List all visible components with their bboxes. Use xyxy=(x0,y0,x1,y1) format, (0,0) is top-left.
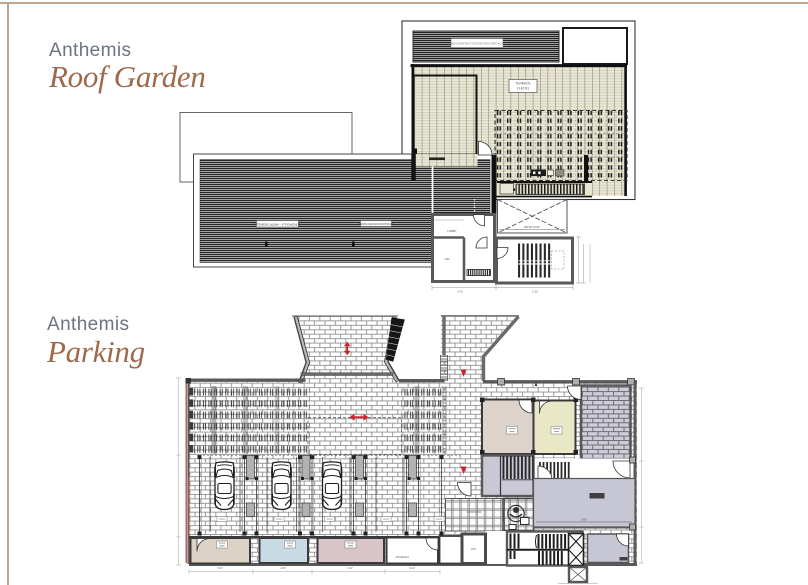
svg-text:ΔΩΜΑ ΜΗΧΑΝΟΛΟΓΙΚΩΝ: ΔΩΜΑ ΜΗΧΑΝΟΛΟΓΙΚΩΝ xyxy=(358,222,394,226)
svg-text:4.10: 4.10 xyxy=(409,566,415,570)
svg-text:ΦΩΤΑΓΩΓΟΣ: ΦΩΤΑΓΩΓΟΣ xyxy=(524,225,540,229)
svg-text:FLAT B1: FLAT B1 xyxy=(517,87,530,91)
svg-text:ΦΩΤΑΓΩΓΟΣ: ΦΩΤΑΓΩΓΟΣ xyxy=(467,511,482,514)
svg-text:5.60: 5.60 xyxy=(532,290,538,294)
svg-text:3.97: 3.97 xyxy=(217,566,223,570)
svg-text:TERRACE: TERRACE xyxy=(515,82,530,86)
svg-text:LOBBY: LOBBY xyxy=(447,229,456,233)
svg-text:4.05: 4.05 xyxy=(280,566,286,570)
svg-text:9.80: 9.80 xyxy=(581,518,587,522)
svg-text:ΦΥΤΕΜΕΝΟ ΔΩΜΑ - ΥΓΡΟΜΟΝΩΣΗ: ΦΥΤΕΜΕΝΟ ΔΩΜΑ - ΥΓΡΟΜΟΝΩΣΗ xyxy=(252,222,302,226)
svg-text:4.92: 4.92 xyxy=(457,290,463,294)
svg-text:4.97: 4.97 xyxy=(347,566,353,570)
svg-text:ΜΕΛΛΟΝΤΙΚΗ ΤΟΠΟΘΕΤΗΣΗ ΠΕΡΓΚΟΛΑ: ΜΕΛΛΟΝΤΙΚΗ ΤΟΠΟΘΕΤΗΣΗ ΠΕΡΓΚΟΛΑΣ xyxy=(451,41,507,45)
svg-text:ΑΠΟΘΗΚΗ: ΑΠΟΘΗΚΗ xyxy=(395,555,408,559)
svg-text:LIFT: LIFT xyxy=(471,547,477,551)
svg-text:Η/Μ: Η/Μ xyxy=(445,257,450,261)
